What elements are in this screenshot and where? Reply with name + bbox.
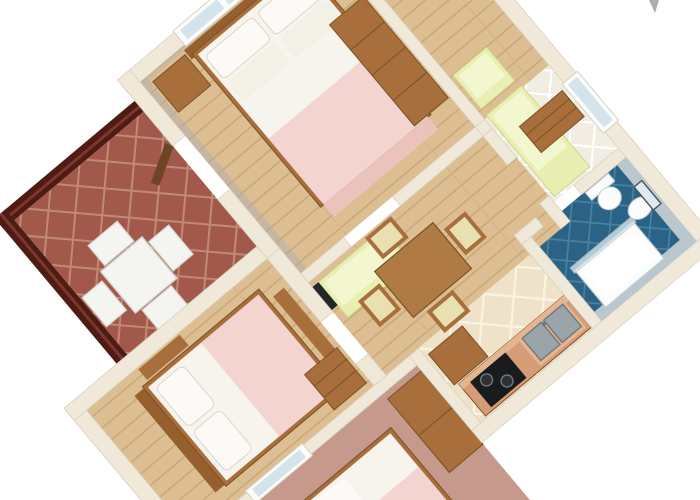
floorplan-stage	[0, 0, 700, 500]
floorplan-render	[0, 0, 700, 500]
